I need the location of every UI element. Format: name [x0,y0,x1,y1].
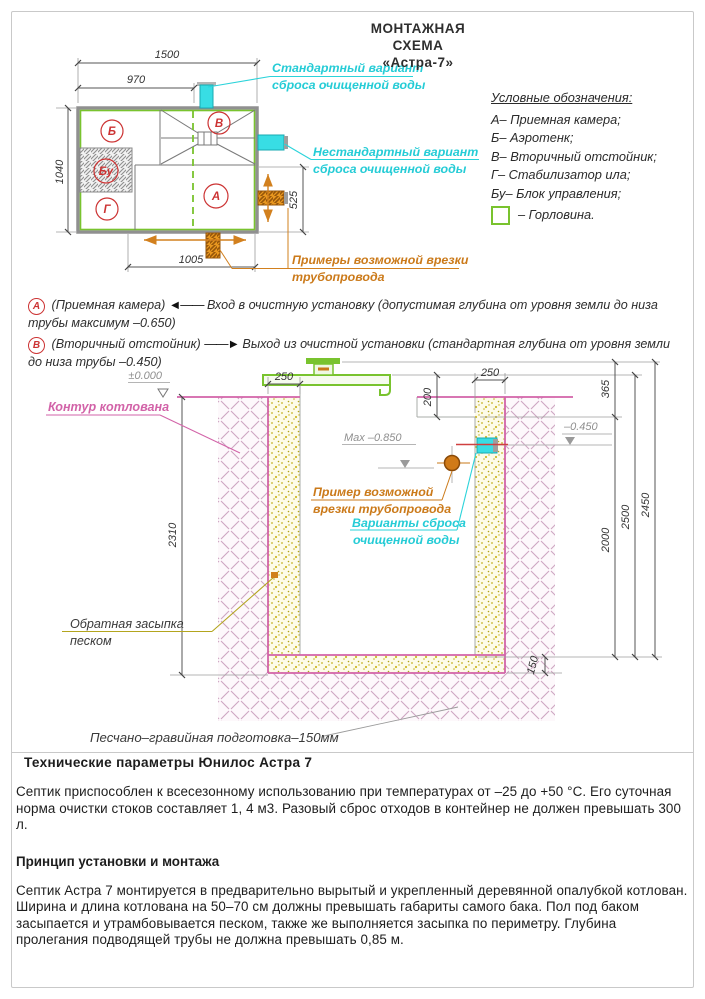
vent-cap [306,358,340,364]
right-arrow-icon: ——► [204,337,239,351]
legend-item: В– Вторичный отстойник; [491,148,691,167]
specs-title: Технические параметры Юнилос Астра 7 [16,755,688,770]
sand-backfill-left [268,397,300,655]
note-b-chamber: (Вторичный отстойник) [52,337,201,351]
title-line2: «Астра-7» [348,54,488,71]
standard-outlet-pipe [200,85,213,108]
inlet-pipe-side [258,191,284,205]
discharge-options-label-1: Варианты сброса [352,516,466,530]
chamber-a-label: А [211,191,220,203]
specs-subtitle: Принцип установки и монтажа [16,854,688,869]
legend-item: Г– Стабилизатор ила; [491,166,691,185]
specs-divider [12,752,693,753]
dim-250-left: 250 [274,371,294,383]
level-outlet: –0.450 [563,421,599,433]
legend: Условные обозначения: А– Приемная камера… [491,89,691,225]
chamber-bu-label: Бу [99,166,114,178]
left-arrow-icon: ◄—— [169,298,204,312]
dim-2500: 2500 [620,504,632,530]
specs-block: Технические параметры Юнилос Астра 7 Сеп… [16,755,688,949]
specs-paragraph-2: Септик Астра 7 монтируется в предварител… [16,883,688,949]
bed-label: Песчано–гравийная подготовка–150мм [90,730,339,745]
legend-item-label: – Горловина. [518,206,595,225]
dim-365: 365 [600,379,612,398]
legend-title: Условные обозначения: [491,89,691,108]
dim-250-right: 250 [480,367,500,379]
legend-item: Бу– Блок управления; [491,185,691,204]
dim-2310: 2310 [167,522,179,548]
dim-1500: 1500 [155,49,180,61]
nonstandard-outlet-pipe [258,135,284,150]
note-a-chamber: (Приемная камера) [52,298,166,312]
specs-paragraph-1: Септик приспособлен к всесезонному испол… [16,784,688,834]
note-inlet: А (Приемная камера) ◄—— Вход в очистную … [28,297,686,332]
level-zero: ±0.000 [128,370,162,382]
nonstandard-discharge-label-2: сброса очищенной воды [313,162,467,176]
backfill-label-2: песком [70,634,112,648]
pipe-examples-label-1: Примеры возможной врезки [292,253,469,267]
dim-1005: 1005 [179,254,204,266]
discharge-options-label-2: очищенной воды [353,533,460,547]
sand-gravel-bed [268,655,505,673]
inlet-example-label-1: Пример возможной [313,485,434,499]
inlet-pipe-bottom [206,233,220,258]
dim-970: 970 [127,74,146,86]
dim-200: 200 [422,387,434,407]
legend-item: Б– Аэротенк; [491,129,691,148]
pipe-examples-label-2: трубопровода [292,270,385,284]
nonstandard-discharge-label-1: Нестандартный вариант [313,145,478,159]
level-max: Max –0.850 [344,432,402,444]
pit-contour-label: Контур котлована [48,400,169,414]
inlet-example-label-2: врезки трубопровода [313,502,451,516]
inlet-pipe-cut [445,456,460,471]
legend-item-neck: – Горловина. [491,206,691,225]
dim-1040: 1040 [54,159,66,184]
standard-discharge-label-2: сброса очищенной воды [272,78,426,92]
drawing-title: МОНТАЖНАЯ СХЕМА «Астра-7» [348,20,488,71]
legend-item: А– Приемная камера; [491,111,691,130]
neck-symbol-icon [491,206,510,225]
chamber-g-label: Г [103,204,111,216]
chamber-b-label: Б [108,126,116,138]
dim-525: 525 [288,190,300,209]
title-line1: МОНТАЖНАЯ СХЕМА [348,20,488,54]
dim-2000: 2000 [600,527,612,553]
dim-2450: 2450 [640,492,652,518]
cross-section: ±0.000 Max –0.850 –0.450 [0,350,705,755]
drawing-sheet: Б В Бу А Г [0,0,705,999]
note-a-badge: А [28,298,45,315]
chamber-v-label: В [215,118,223,130]
backfill-label-1: Обратная засыпка [70,617,184,631]
